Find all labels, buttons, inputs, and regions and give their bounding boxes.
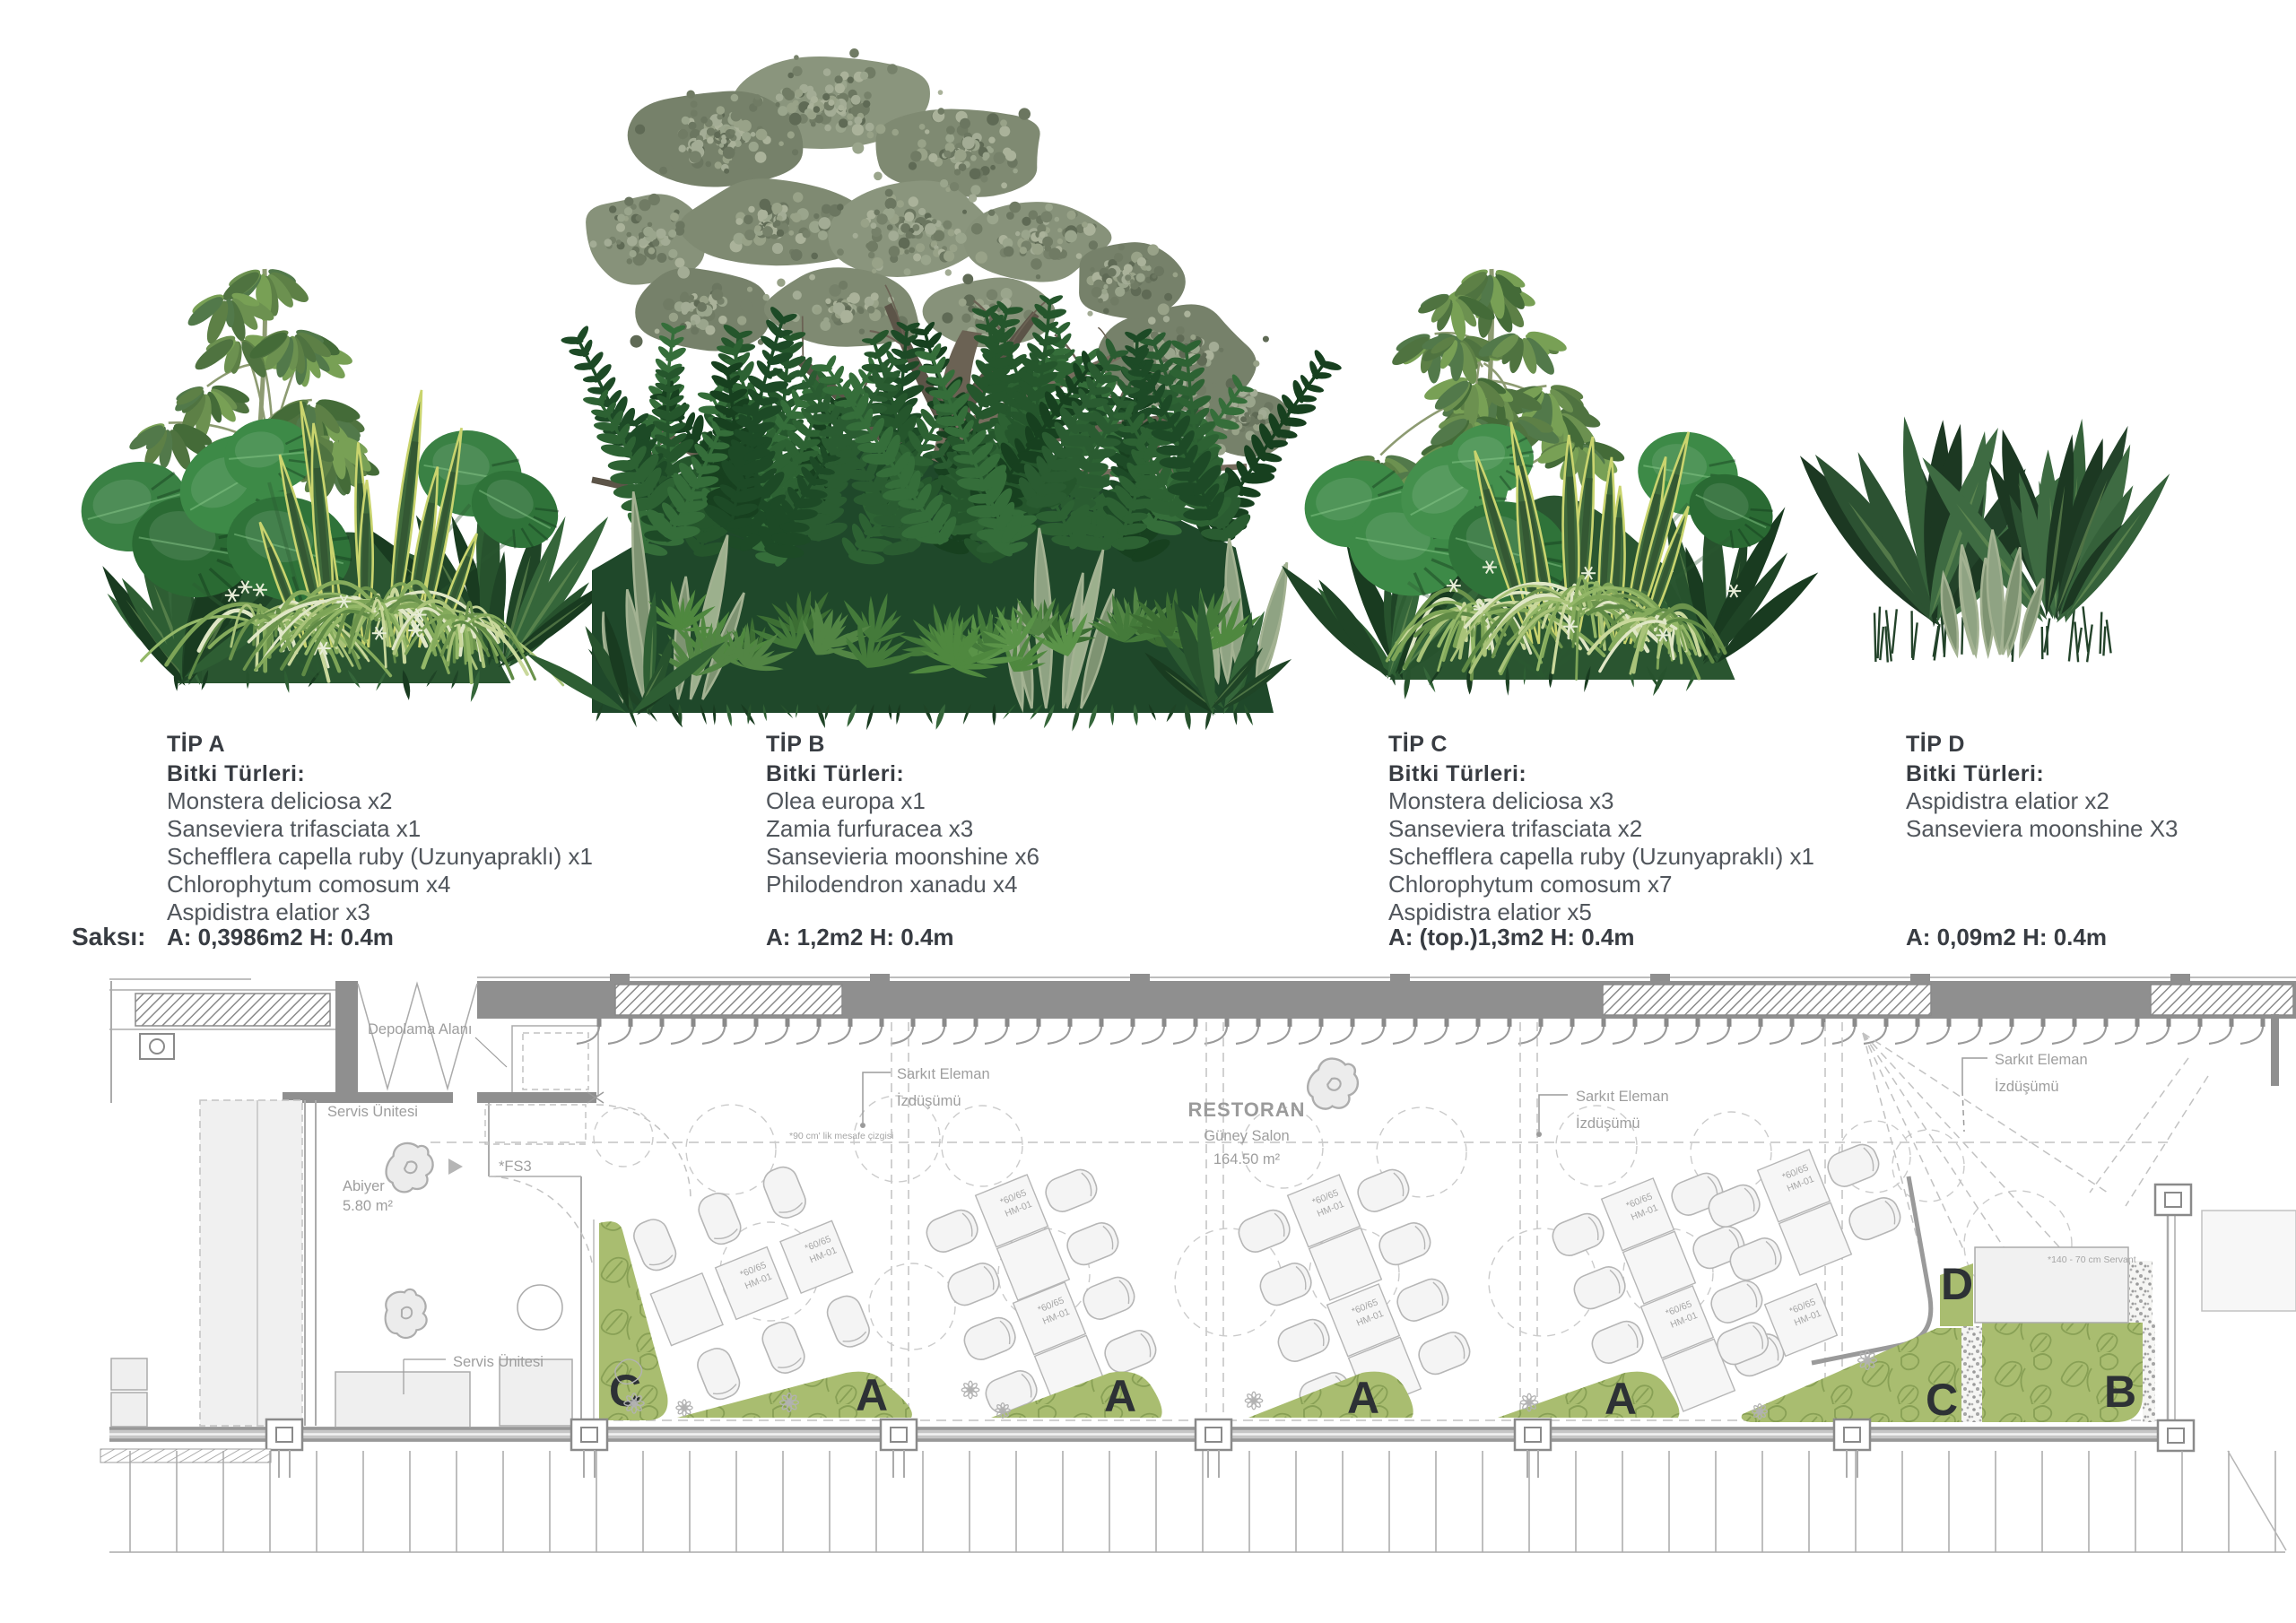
svg-text:Bitki Türleri:: Bitki Türleri:: [167, 761, 305, 786]
svg-text:Saksı:: Saksı:: [72, 923, 146, 950]
svg-text:B: B: [2104, 1367, 2136, 1417]
svg-text:Olea europa x1: Olea europa x1: [766, 787, 926, 814]
svg-text:Sanseviera moonshine X3: Sanseviera moonshine X3: [1906, 815, 2179, 842]
svg-text:RESTORAN: RESTORAN: [1187, 1098, 1305, 1121]
svg-text:Güney Salon: Güney Salon: [1204, 1128, 1289, 1144]
svg-text:Abiyer: Abiyer: [343, 1178, 385, 1194]
svg-text:A: A: [1347, 1373, 1379, 1423]
svg-text:Sarkıt Eleman: Sarkıt Eleman: [897, 1066, 990, 1082]
svg-text:Aspidistra elatior x3: Aspidistra elatior x3: [167, 898, 370, 925]
svg-text:A: 1,2m2 H: 0.4m: A: 1,2m2 H: 0.4m: [766, 924, 954, 950]
svg-text:Monstera deliciosa x3: Monstera deliciosa x3: [1388, 787, 1613, 814]
svg-text:C: C: [1926, 1375, 1958, 1425]
svg-text:Philodendron xanadu x4: Philodendron xanadu x4: [766, 871, 1017, 898]
svg-text:İzdüşümü: İzdüşümü: [1576, 1115, 1640, 1132]
svg-text:İzdüşümü: İzdüşümü: [897, 1092, 961, 1109]
svg-text:Bitki Türleri:: Bitki Türleri:: [766, 761, 904, 786]
svg-text:A: A: [1104, 1371, 1136, 1421]
svg-text:Chlorophytum comosum x7: Chlorophytum comosum x7: [1388, 871, 1672, 898]
svg-text:Sanseviera trifasciata x2: Sanseviera trifasciata x2: [1388, 815, 1642, 842]
svg-text:A: (top.)1,3m2 H: 0.4m: A: (top.)1,3m2 H: 0.4m: [1388, 924, 1635, 950]
svg-text:Sarkıt Eleman: Sarkıt Eleman: [1995, 1052, 2088, 1068]
svg-text:Bitki Türleri:: Bitki Türleri:: [1906, 761, 2044, 786]
svg-text:İzdüşümü: İzdüşümü: [1995, 1078, 2059, 1095]
svg-text:Sansevieria moonshine x6: Sansevieria moonshine x6: [766, 843, 1039, 870]
svg-text:TİP A: TİP A: [167, 732, 225, 757]
svg-text:Schefflera capella ruby (Uzuny: Schefflera capella ruby (Uzunyapraklı) x…: [167, 843, 593, 870]
svg-text:5.80 m²: 5.80 m²: [343, 1198, 393, 1214]
svg-text:A: 0,09m2 H: 0.4m: A: 0,09m2 H: 0.4m: [1906, 924, 2107, 950]
svg-text:*FS3: *FS3: [499, 1159, 532, 1175]
svg-text:A: A: [856, 1370, 888, 1420]
svg-text:TİP B: TİP B: [766, 732, 825, 757]
svg-text:*90 cm' lik mesafe çizgisi: *90 cm' lik mesafe çizgisi: [789, 1131, 893, 1141]
svg-text:*140 - 70 cm Servant: *140 - 70 cm Servant: [2048, 1254, 2136, 1265]
svg-text:Sanseviera trifasciata x1: Sanseviera trifasciata x1: [167, 815, 421, 842]
svg-text:Aspidistra elatior x2: Aspidistra elatior x2: [1906, 787, 2109, 814]
svg-text:Zamia furfuracea x3: Zamia furfuracea x3: [766, 815, 973, 842]
svg-text:Chlorophytum comosum x4: Chlorophytum comosum x4: [167, 871, 450, 898]
svg-text:A: 0,3986m2 H: 0.4m: A: 0,3986m2 H: 0.4m: [167, 924, 394, 950]
svg-text:Sarkıt Eleman: Sarkıt Eleman: [1576, 1089, 1669, 1105]
svg-text:TİP D: TİP D: [1906, 732, 1965, 757]
svg-text:Servis Ünitesi: Servis Ünitesi: [453, 1354, 544, 1370]
svg-text:Depolama Alanı: Depolama Alanı: [368, 1021, 473, 1037]
svg-text:TİP C: TİP C: [1388, 732, 1448, 757]
svg-text:Servis Ünitesi: Servis Ünitesi: [327, 1104, 418, 1120]
svg-text:A: A: [1605, 1374, 1637, 1424]
svg-text:164.50 m²: 164.50 m²: [1213, 1151, 1281, 1167]
svg-text:D: D: [1941, 1259, 1973, 1309]
svg-text:Aspidistra elatior x5: Aspidistra elatior x5: [1388, 898, 1592, 925]
svg-text:Monstera deliciosa x2: Monstera deliciosa x2: [167, 787, 392, 814]
svg-text:Schefflera capella ruby (Uzuny: Schefflera capella ruby (Uzunyapraklı) x…: [1388, 843, 1814, 870]
svg-text:Bitki Türleri:: Bitki Türleri:: [1388, 761, 1526, 786]
